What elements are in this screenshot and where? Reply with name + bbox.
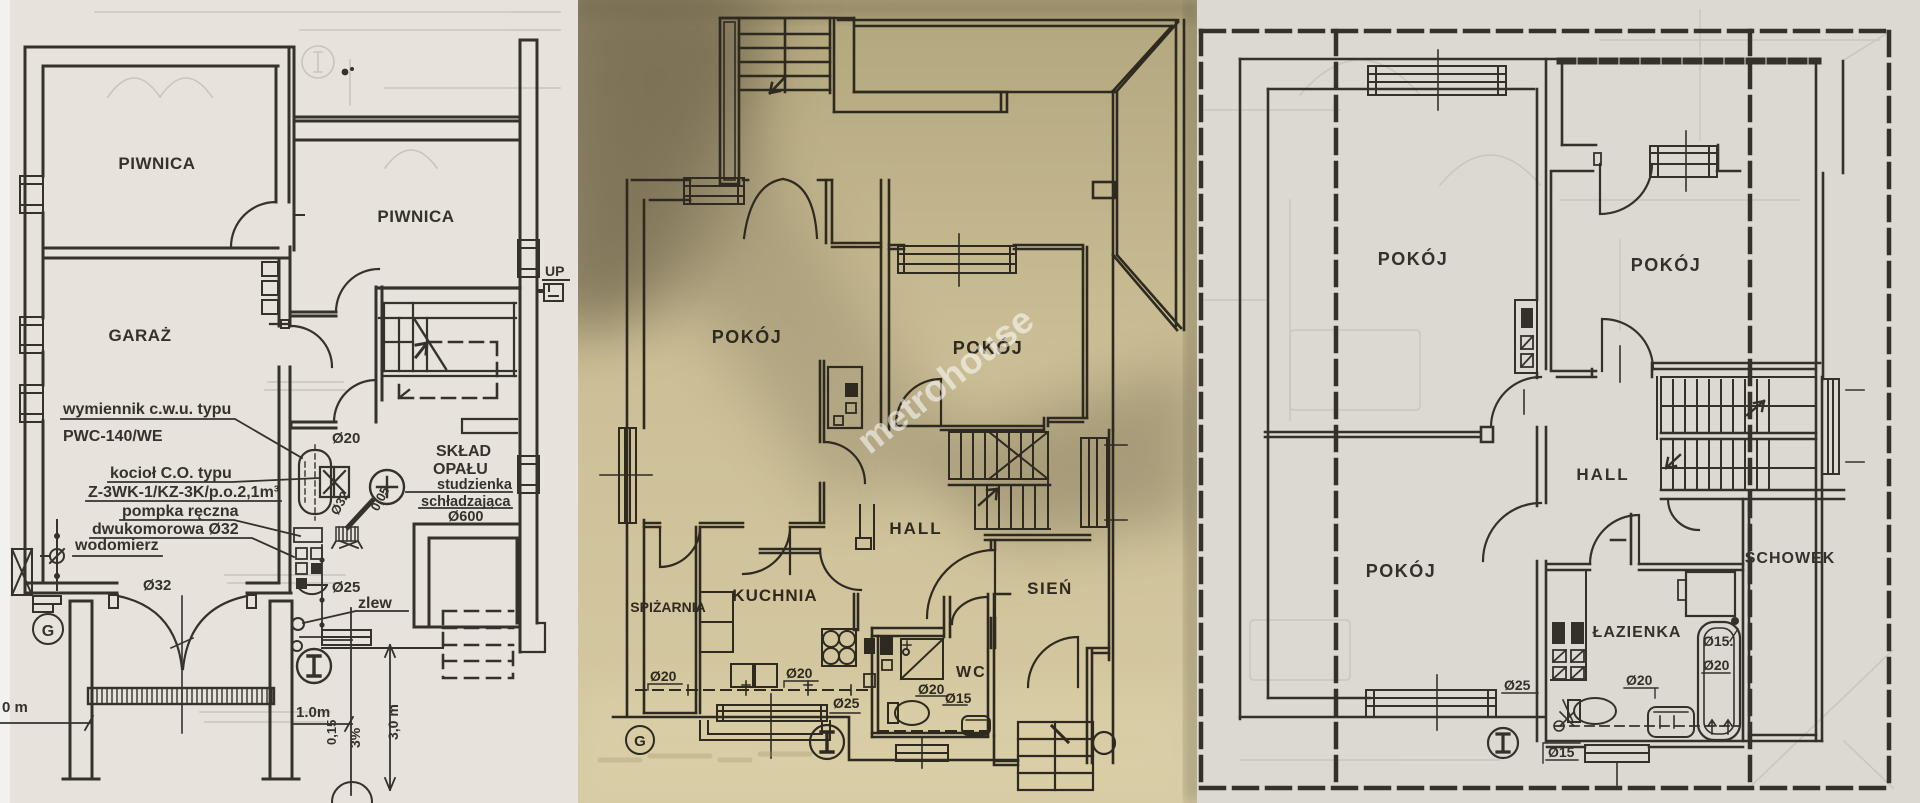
svg-text:SIEŃ: SIEŃ xyxy=(1027,579,1073,598)
svg-text:UP: UP xyxy=(545,263,564,279)
svg-text:ŁAZIENKA: ŁAZIENKA xyxy=(1593,624,1682,641)
svg-text:kocioł C.O. typu: kocioł C.O. typu xyxy=(110,465,232,482)
svg-text:zlew: zlew xyxy=(358,595,392,612)
svg-text:0 m: 0 m xyxy=(2,699,28,716)
svg-text:Ø25: Ø25 xyxy=(833,695,860,711)
svg-text:Ø20: Ø20 xyxy=(650,668,677,684)
svg-text:HALL: HALL xyxy=(889,519,942,538)
svg-text:Ø25: Ø25 xyxy=(332,579,360,596)
svg-text:WC: WC xyxy=(956,664,987,681)
svg-text:PWC-140/WE: PWC-140/WE xyxy=(63,428,163,445)
svg-text:3,0 m: 3,0 m xyxy=(385,704,401,740)
svg-text:Ø20: Ø20 xyxy=(918,681,945,697)
svg-text:POKÓJ: POKÓJ xyxy=(1366,560,1437,581)
svg-text:Ø20: Ø20 xyxy=(1703,657,1730,673)
svg-text:KUCHNIA: KUCHNIA xyxy=(732,586,817,605)
svg-text:G: G xyxy=(42,623,54,640)
svg-text:Ø20: Ø20 xyxy=(786,665,813,681)
svg-text:studzienka: studzienka xyxy=(437,477,513,493)
svg-text:1.0m: 1.0m xyxy=(296,704,330,721)
svg-text:SPIŻARNIA: SPIŻARNIA xyxy=(630,599,705,615)
svg-text:Ø15.: Ø15. xyxy=(1703,633,1733,649)
svg-text:Ø32: Ø32 xyxy=(143,577,171,594)
svg-text:POKÓJ: POKÓJ xyxy=(1631,254,1702,275)
svg-text:POKÓJ: POKÓJ xyxy=(1378,248,1449,269)
svg-text:Z-3WK-1/KZ-3K/p.o.2,1m³: Z-3WK-1/KZ-3K/p.o.2,1m³ xyxy=(88,484,279,501)
svg-text:HALL: HALL xyxy=(1576,465,1629,484)
svg-text:POKÓJ: POKÓJ xyxy=(712,326,783,347)
svg-text:PIWNICA: PIWNICA xyxy=(377,207,454,226)
svg-text:Ø15: Ø15 xyxy=(945,690,972,706)
svg-text:SKŁAD: SKŁAD xyxy=(436,443,491,460)
svg-text:Ø20: Ø20 xyxy=(332,430,360,447)
svg-text:OPAŁU: OPAŁU xyxy=(433,461,488,478)
svg-text:G: G xyxy=(634,733,646,750)
svg-text:dwukomorowa Ø32: dwukomorowa Ø32 xyxy=(92,521,239,538)
svg-text:GARAŻ: GARAŻ xyxy=(109,326,172,345)
svg-text:pompka ręczna: pompka ręczna xyxy=(122,503,239,520)
svg-text:wodomierz: wodomierz xyxy=(74,537,159,554)
svg-text:0,15: 0,15 xyxy=(324,720,339,745)
svg-text:Ø20: Ø20 xyxy=(1626,672,1653,688)
svg-text:Ø25: Ø25 xyxy=(1504,677,1531,693)
svg-text:wymiennik c.w.u. typu: wymiennik c.w.u. typu xyxy=(62,401,231,418)
svg-text:PIWNICA: PIWNICA xyxy=(118,154,195,173)
svg-text:3%: 3% xyxy=(347,727,363,748)
